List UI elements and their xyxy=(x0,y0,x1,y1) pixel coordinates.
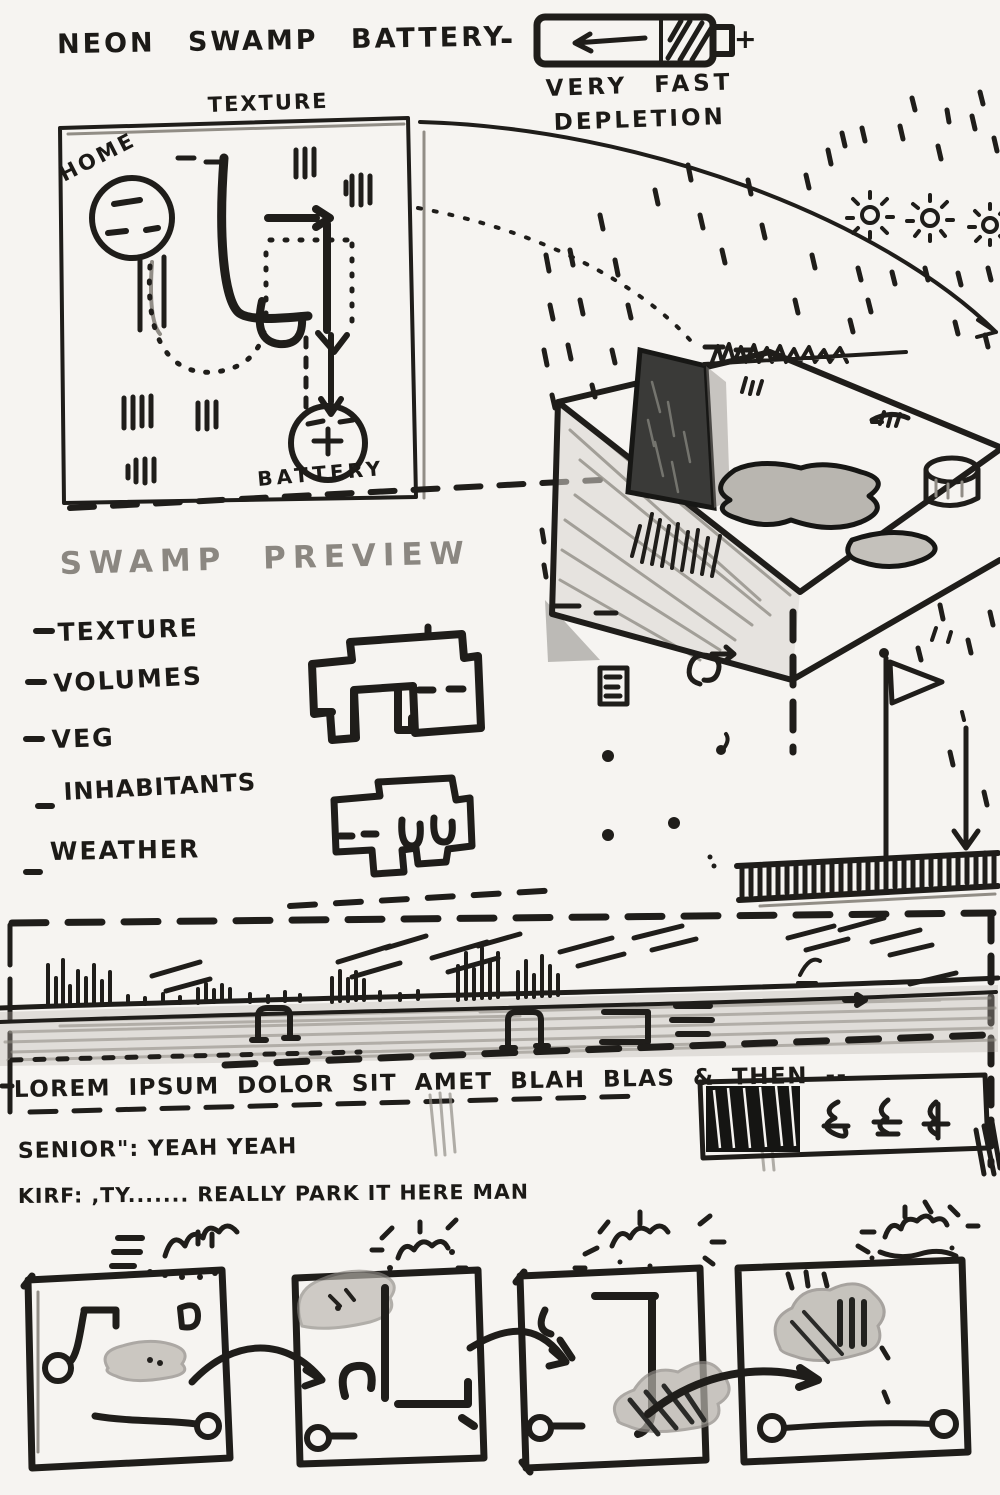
sun-scribble-icon-3 xyxy=(575,1212,724,1269)
storyboard-panel-2 xyxy=(295,1270,484,1464)
sun-doodle-icons xyxy=(847,192,1000,245)
puddle-large xyxy=(721,463,879,527)
legend-glyphs xyxy=(824,1100,948,1138)
panel-1-d-glyph xyxy=(180,1305,198,1327)
perspective-links xyxy=(418,122,996,350)
panel-4-node-a xyxy=(760,1416,784,1440)
battery-caption-line1: VERY FAST xyxy=(545,69,734,102)
maze-wall-arrow xyxy=(268,209,330,330)
battery-caption-line2: DEPLETION xyxy=(553,104,726,136)
creature-small-eyes xyxy=(340,834,376,836)
route-dotted xyxy=(149,240,352,372)
panel-2-node xyxy=(307,1427,329,1449)
home-corridor-echo xyxy=(151,262,160,334)
sun-scribble-icon-4 xyxy=(858,1202,978,1261)
checklist-item-inhabitants: INHABITANTS xyxy=(63,768,257,806)
home-node xyxy=(92,178,172,258)
texture-map-box: TEXTURE HOME BATTERY xyxy=(55,89,600,508)
lead-dashed-line xyxy=(290,890,560,906)
sweep-curve xyxy=(420,122,996,337)
page-title: NEON SWAMP BATTERY xyxy=(57,21,507,60)
checklist-bullets xyxy=(26,631,52,872)
monolith xyxy=(628,350,714,508)
storyboard-panel-3 xyxy=(516,1268,729,1472)
panel-1-blob xyxy=(105,1341,185,1380)
panel-1-node-a xyxy=(45,1355,71,1381)
down-arrow xyxy=(954,728,978,848)
battery-node-face xyxy=(308,420,353,454)
flag-triangle xyxy=(890,662,942,703)
mid-area xyxy=(290,612,998,906)
checklist-item-veg: VEG xyxy=(51,723,115,754)
panel-1-node-b xyxy=(197,1415,219,1437)
panel-4-ticks xyxy=(882,1348,888,1402)
panel-4-bottom-path xyxy=(784,1423,932,1428)
scatter-dots xyxy=(602,734,728,869)
puddle-small xyxy=(848,532,935,566)
panel-4-node-b xyxy=(932,1412,956,1436)
storyboard-panel-1 xyxy=(24,1270,230,1468)
strip-border-top xyxy=(12,913,993,923)
battery-drop-arrow xyxy=(318,333,347,414)
dialogue-line-kirf: KIRF: ,TY....... REALLY PARK IT HERE MAN xyxy=(18,1180,529,1208)
texture-map-label: TEXTURE xyxy=(207,89,329,117)
creature-sprite-small xyxy=(334,778,472,874)
dialogue-line-senior: SENIOR": YEAH YEAH xyxy=(18,1134,298,1164)
panel-4-dashes xyxy=(788,1272,827,1288)
checklist-item-weather: WEATHER xyxy=(50,834,201,866)
preview-checklist: TEXTURE VOLUMES VEG INHABITANTS WEATHER xyxy=(26,613,257,872)
flag-marker xyxy=(879,628,978,868)
battery-charge-hatch xyxy=(668,21,712,60)
battery-node-label: BATTERY xyxy=(256,456,385,491)
creature-sprites xyxy=(312,627,481,874)
battery-minus-label: - xyxy=(500,20,513,58)
back-edge-grass xyxy=(704,344,906,364)
sun-scribble-icon-2 xyxy=(372,1220,466,1271)
maze-wall xyxy=(222,158,308,319)
caption-left-bracket xyxy=(2,1062,12,1112)
panel-1-bottom-path xyxy=(95,1416,196,1424)
panel-3-node xyxy=(529,1417,551,1439)
panel-arrow-1 xyxy=(192,1348,322,1386)
battery-depletion-arrow xyxy=(575,34,645,51)
preview-heading: SWAMP PREVIEW xyxy=(59,535,471,582)
battery-icon: - + VERY FAST DEPLETION xyxy=(500,17,757,136)
storyboard xyxy=(24,1202,978,1472)
boxed-e-glyph xyxy=(600,668,627,704)
home-face xyxy=(108,200,158,233)
battery-terminal xyxy=(715,27,732,54)
sketch-canvas: NEON SWAMP BATTERY - + VERY FAST DEPLETI… xyxy=(0,0,1000,1495)
battery-plus-label: + xyxy=(734,24,757,55)
checklist-item-texture: TEXTURE xyxy=(57,613,199,647)
fence-hatch-band xyxy=(737,853,998,906)
checklist-item-volumes: VOLUMES xyxy=(53,661,204,698)
storyboard-panel-4 xyxy=(738,1260,968,1462)
wind-streaks xyxy=(152,918,956,991)
sketch-drawing: NEON SWAMP BATTERY - + VERY FAST DEPLETI… xyxy=(0,0,1000,1495)
